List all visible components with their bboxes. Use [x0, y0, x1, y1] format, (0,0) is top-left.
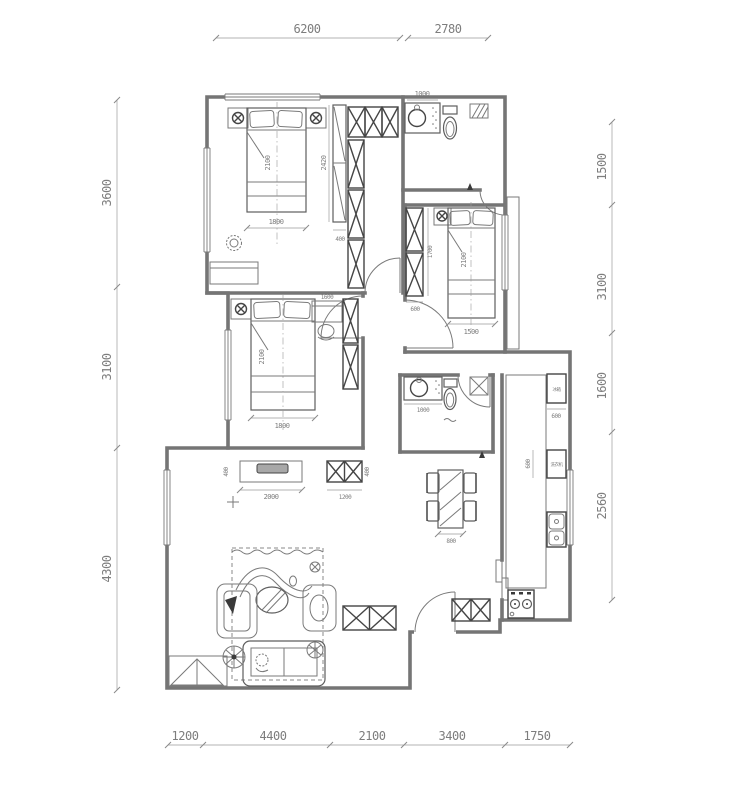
door-master	[365, 258, 400, 293]
dim-bottom-2: 4400	[260, 729, 287, 743]
side-cabinet	[327, 461, 362, 482]
floor-drain-mark	[444, 419, 456, 422]
tv-cabinet	[240, 461, 302, 482]
dim-bed2-length: 2100	[460, 252, 468, 267]
dim-top-1: 6200	[294, 22, 321, 36]
dim-bottom-1: 1200	[172, 729, 199, 743]
dim-cab-depth-right: 400	[364, 466, 371, 476]
dim-bed2-wardrobe-width: 600	[410, 306, 420, 313]
sliding-wardrobe	[333, 105, 346, 222]
desk: 1600	[312, 294, 342, 322]
towel-dots	[435, 380, 440, 394]
fridge-label: 冰箱	[553, 386, 562, 393]
plant-right	[307, 642, 323, 658]
bedroom-middle: 2100 1800 1600	[231, 294, 358, 430]
wardrobe	[406, 208, 423, 296]
centerline-cross	[227, 496, 239, 508]
dimension-chain-left: 3600 3100 4300	[100, 97, 120, 693]
bedroom-right: 600 1700 2100 1500	[406, 202, 498, 336]
dim-tv-cabinet: 2000	[264, 493, 279, 501]
dim-closet-height: 2420	[320, 155, 328, 170]
pillow	[250, 110, 275, 127]
pillow	[450, 210, 471, 225]
kitchen-sink	[547, 512, 566, 547]
dresser	[210, 262, 258, 284]
wardrobe	[343, 299, 358, 389]
dim-left-1: 3600	[100, 179, 114, 206]
curved-sofa	[236, 568, 312, 598]
vanity-sink	[405, 103, 440, 133]
nightstand	[231, 299, 251, 319]
bay-window-planter	[169, 656, 227, 686]
basin-icon	[409, 110, 426, 127]
dimension-chain-top: 6200 2780	[213, 22, 491, 41]
dim-master-bed-width-group: 1800	[244, 218, 309, 231]
vanity-sink	[404, 377, 442, 400]
dim-left-3: 4300	[100, 555, 114, 582]
washer-label: 洗衣机	[551, 461, 564, 468]
dim-side-cabinet: 1200	[339, 494, 352, 501]
shower-corner	[470, 377, 488, 395]
dim-dining-table: 800	[446, 538, 456, 545]
armchair-left	[217, 584, 257, 638]
towel-dots	[432, 107, 437, 129]
dim-bed3-width: 1800	[275, 422, 290, 430]
nightstand-left	[228, 108, 248, 128]
pillow	[254, 301, 281, 318]
dim-bottom-4: 3400	[439, 729, 466, 743]
plant-left	[223, 646, 245, 668]
dim-kitchen-1: 600	[551, 413, 561, 420]
wardrobe-cabinets-side	[348, 140, 364, 288]
dim-bed2-wardrobe-length: 1700	[427, 245, 434, 258]
stool	[227, 236, 242, 251]
toilet	[443, 106, 457, 139]
dim-bed3-desk: 1600	[321, 294, 334, 301]
pillow	[278, 110, 303, 127]
nightstand-right	[306, 108, 326, 128]
low-cabinet	[343, 606, 396, 630]
shoe-cabinet	[452, 599, 490, 621]
dining-area: 800	[427, 470, 476, 545]
armchair-right	[303, 585, 336, 631]
door-bathroom-top	[467, 183, 505, 215]
plant-center	[256, 654, 268, 672]
dim-tv-depth-left: 400	[223, 466, 230, 476]
floor-plan-drawing: 6200 2780 1200 4400 2100 3400 1750 3600 …	[0, 0, 740, 800]
dimension-chain-right: 1500 3100 1600 2560	[595, 119, 615, 603]
dim-kitchen-2: 600	[525, 458, 532, 468]
rug-fringe	[232, 550, 323, 554]
window-kitchen-right	[567, 470, 574, 545]
toilet	[444, 379, 457, 410]
window-master-left	[204, 148, 211, 252]
door-bathroom-middle	[458, 375, 490, 458]
window-master-top	[225, 94, 320, 101]
window-bedroom2-right	[502, 215, 509, 290]
double-bed: 2100	[251, 294, 315, 430]
dim-bath2-vanity: 1000	[417, 407, 430, 414]
dining-table	[438, 470, 463, 528]
wardrobe-cabinets-top	[348, 107, 398, 137]
dim-master-bed-length: 2100	[264, 155, 272, 170]
dim-right-3: 1600	[595, 372, 609, 399]
double-bed: 2100	[448, 202, 495, 330]
pillow	[284, 301, 311, 318]
door-entry	[415, 592, 455, 632]
floor-lamp	[310, 562, 320, 572]
dim-bottom-3: 2100	[359, 729, 386, 743]
entry	[343, 599, 490, 630]
dim-closet-depth: 400	[335, 236, 345, 243]
tv-icon	[257, 464, 288, 473]
floor-plan-canvas: 6200 2780 1200 4400 2100 3400 1750 3600 …	[0, 0, 740, 800]
dim-bottom-5: 1750	[524, 729, 551, 743]
dim-master-bed-width: 1800	[269, 218, 284, 226]
master-bedroom: 2100 1800	[210, 102, 326, 284]
window-living-left	[164, 470, 171, 545]
bathroom-middle: 1000	[404, 377, 488, 422]
stove	[508, 590, 534, 618]
dim-right-2: 3100	[595, 273, 609, 300]
dim-right-1: 1500	[595, 153, 609, 180]
duct-shaft	[470, 104, 488, 118]
fridge: 冰箱	[547, 374, 566, 403]
cushion	[225, 596, 237, 614]
kitchen: 冰箱 600 洗衣机 600	[506, 374, 566, 618]
door-swing-marker	[467, 183, 473, 190]
dim-bath1-vanity: 1000	[415, 90, 430, 98]
dim-top-2: 2780	[435, 22, 462, 36]
dim-left-2: 3100	[100, 353, 114, 380]
pillow	[473, 210, 494, 225]
washer: 洗衣机	[547, 450, 566, 478]
dim-bed2-width: 1500	[464, 328, 479, 336]
dimension-chain-bottom: 1200 4400 2100 3400 1750	[165, 729, 573, 748]
counter	[506, 375, 546, 588]
dim-bed3-length: 2100	[258, 349, 266, 364]
window-bedroom3-left	[225, 330, 232, 420]
rug	[232, 548, 323, 680]
dim-right-4: 2560	[595, 492, 609, 519]
coffee-table	[256, 587, 288, 613]
living-room: 2000 400 400 1200	[169, 461, 371, 686]
